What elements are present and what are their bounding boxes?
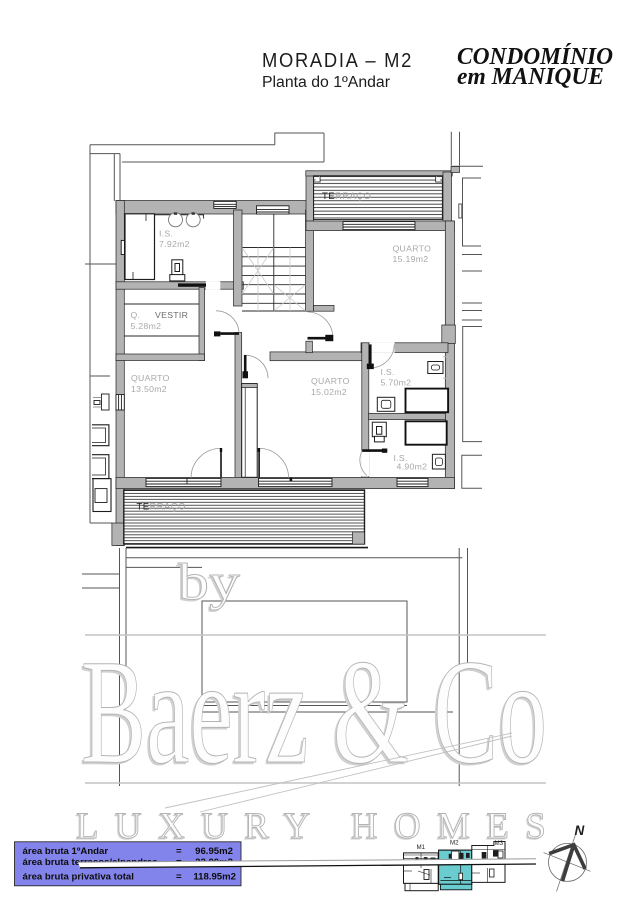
- svg-text:Baerz & Co: Baerz & Co: [81, 629, 547, 795]
- svg-text:I.S.: I.S.: [159, 229, 173, 239]
- svg-text:4.90m2: 4.90m2: [397, 462, 428, 472]
- svg-text:=: =: [176, 846, 182, 857]
- svg-text:em MANIQUE: em MANIQUE: [457, 64, 604, 90]
- svg-text:QUARTO: QUARTO: [393, 244, 432, 254]
- svg-text:by: by: [178, 554, 240, 611]
- svg-text:QUARTO: QUARTO: [311, 376, 350, 386]
- svg-text:QUARTO: QUARTO: [131, 373, 170, 383]
- svg-text:=: =: [176, 872, 182, 883]
- svg-text:TE: TE: [137, 502, 150, 513]
- svg-text:Q.: Q.: [131, 310, 141, 320]
- svg-text:M1: M1: [417, 844, 426, 851]
- svg-text:M3: M3: [495, 840, 504, 847]
- svg-text:13.50m2: 13.50m2: [131, 384, 167, 394]
- svg-text:TE: TE: [322, 191, 335, 202]
- svg-text:96.95m2: 96.95m2: [195, 846, 233, 857]
- svg-text:N: N: [575, 823, 585, 838]
- svg-text:7.92m2: 7.92m2: [159, 239, 190, 249]
- svg-text:5.28m2: 5.28m2: [131, 321, 162, 331]
- svg-text:5.70m2: 5.70m2: [381, 378, 412, 388]
- svg-text:15.02m2: 15.02m2: [311, 387, 347, 397]
- svg-text:MORADIA – M2: MORADIA – M2: [262, 49, 413, 72]
- svg-text:área bruta privativa total: área bruta privativa total: [23, 872, 134, 883]
- svg-text:VESTIR: VESTIR: [155, 310, 188, 320]
- svg-text:M2: M2: [450, 840, 459, 847]
- svg-text:I.S.: I.S.: [381, 367, 395, 377]
- svg-text:118.95m2: 118.95m2: [193, 872, 236, 883]
- svg-text:15.19m2: 15.19m2: [393, 254, 429, 264]
- svg-text:Planta do 1ºAndar: Planta do 1ºAndar: [262, 74, 390, 91]
- svg-text:área bruta 1ºAndar: área bruta 1ºAndar: [23, 846, 109, 857]
